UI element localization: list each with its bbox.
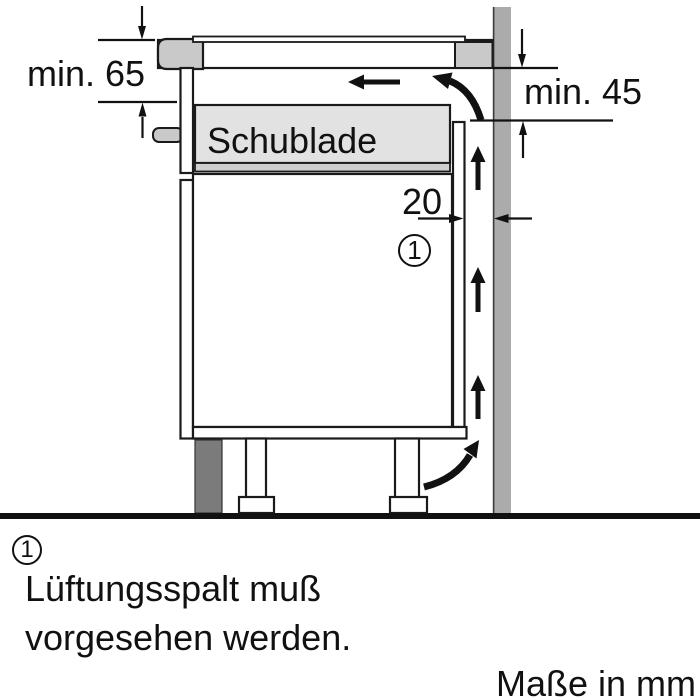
cabinet-leg-right xyxy=(395,439,419,499)
airflow-arrow-up-1-icon xyxy=(471,146,486,190)
units-note: Maße in mm xyxy=(496,666,696,700)
airflow-arrow-left-icon xyxy=(348,75,400,90)
wall xyxy=(493,7,511,513)
legend-1-number: 1 xyxy=(20,537,33,563)
cooktop-body xyxy=(158,40,493,68)
airflow-arrow-up-3-icon xyxy=(471,375,486,419)
dim-label-min65: min. 65 xyxy=(27,56,145,92)
cabinet-foot-right xyxy=(390,497,427,513)
plinth-panel xyxy=(195,440,222,513)
legend-1-badge: 1 xyxy=(12,535,42,565)
cabinet-front-panel xyxy=(181,180,194,439)
worktop-right-end xyxy=(455,42,493,68)
legend-note-line2: vorgesehen werden. xyxy=(25,619,351,657)
dim-arrow-down-right xyxy=(518,54,526,68)
callout-1-number: 1 xyxy=(407,236,421,265)
airflow-arrow-curve-top-icon xyxy=(450,81,481,120)
cabinet-foot-left xyxy=(239,497,274,513)
floor-line xyxy=(0,513,700,519)
dim-arrow-up-left xyxy=(139,103,147,117)
worktop-left-end xyxy=(158,39,203,69)
cabinet-bottom-panel xyxy=(193,427,467,439)
cooktop-glass-top xyxy=(193,37,465,43)
callout-1-badge: 1 xyxy=(398,234,431,267)
drawer-label: Schublade xyxy=(207,123,377,159)
dim-arrow-up-right xyxy=(519,121,527,135)
cabinet-back-panel xyxy=(453,122,465,427)
dim-label-20: 20 xyxy=(402,184,442,220)
drawer-front-panel xyxy=(181,68,194,173)
cabinet-leg-left xyxy=(246,439,266,499)
drawer-bottom-panel xyxy=(195,163,450,172)
dim-label-min45: min. 45 xyxy=(524,74,642,110)
airflow-arrow-up-2-icon xyxy=(471,267,486,312)
airflow-arrow-curve-top-head xyxy=(432,73,453,90)
installation-diagram: min. 65 min. 45 20 Schublade 1 1 Lüftung… xyxy=(0,0,700,700)
airflow-arrow-curve-bottom-icon xyxy=(424,455,470,487)
drawer-handle xyxy=(153,128,183,142)
legend-note-line1: Lüftungsspalt muß xyxy=(25,570,321,608)
dim-arrow-down-left xyxy=(138,26,146,40)
